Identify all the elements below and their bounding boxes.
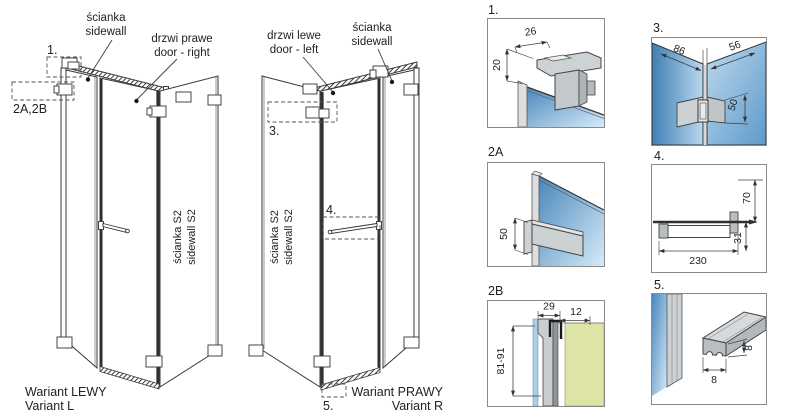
right-view-variant-r: 3. 4. 5. drzwi lewe door - left ścianka … <box>249 22 444 413</box>
right-door-label-line1: drzwi lewe <box>267 30 321 42</box>
svg-text:sidewall S2: sidewall S2 <box>186 209 198 265</box>
dim-81-91: 81-91 <box>495 347 507 374</box>
dim-31: 31 <box>732 232 744 244</box>
right-variant-label-en: Variant R <box>392 399 443 413</box>
detail-1-drawing: 26 20 <box>488 19 604 127</box>
handle-standoff-left <box>659 224 668 238</box>
callout-4-label: 4. <box>326 203 336 217</box>
detail-5-label: 5. <box>654 279 664 292</box>
detail-1-box: 26 20 <box>487 18 605 128</box>
threshold-profile-3d <box>703 312 766 356</box>
detail-2b-drawing: 29 12 81-91 <box>488 301 604 406</box>
left-sidewall-label-line1: ścianka <box>87 12 127 24</box>
callout-3-label: 3. <box>269 124 279 138</box>
detail-2a-label: 2A <box>488 146 503 159</box>
detail-3-drawing: 86 56 50 <box>652 38 766 145</box>
left-variant-label-pl: Wariant LEWY <box>25 385 107 399</box>
dim-26: 26 <box>524 25 537 39</box>
left-door-label-line1: drzwi prawe <box>151 33 212 45</box>
detail-2a-box: 50 <box>487 162 605 267</box>
callout-2ab-label: 2A,2B <box>13 102 47 116</box>
corner-hinge <box>677 97 725 127</box>
left-view-variant-l: 1. 2A,2B ścianka sidewall drzwi prawe do… <box>12 12 222 413</box>
right-variant-label-pl: Wariant PRAWY <box>352 385 444 399</box>
glass-panel <box>652 294 667 396</box>
glass-panel-left <box>652 43 703 145</box>
detail-2b-label: 2B <box>488 285 503 298</box>
detail-4-label: 4. <box>654 150 664 163</box>
right-door-label-line2: door - left <box>270 44 319 56</box>
wall-section <box>565 323 604 406</box>
dim-230: 230 <box>689 255 707 267</box>
dim-8-width: 8 <box>711 374 717 386</box>
callout-1-label: 1. <box>47 43 57 57</box>
svg-text:ścianka S2: ścianka S2 <box>172 210 184 264</box>
detail-5-drawing: 8 8 <box>652 294 766 404</box>
wall-profile <box>61 68 66 341</box>
dim-50: 50 <box>498 228 510 240</box>
dim-8-height: 8 <box>743 345 755 351</box>
glass-edge-profile <box>518 81 527 127</box>
assembly-views-drawing: 1. 2A,2B ścianka sidewall drzwi prawe do… <box>0 0 480 417</box>
dim-20: 20 <box>491 59 503 71</box>
detail-2b-box: 29 12 81-91 <box>487 300 605 407</box>
detail-3-label: 3. <box>653 22 663 35</box>
glass-edge-profile <box>667 294 682 387</box>
svg-text:sidewall S2: sidewall S2 <box>283 209 295 265</box>
profile-insert <box>553 321 558 406</box>
left-variant-label-en: Variant L <box>25 399 74 413</box>
detail-4-drawing: 230 70 31 <box>652 165 766 272</box>
wall-profile <box>414 68 419 341</box>
dim-12: 12 <box>570 306 582 318</box>
handle-bar <box>668 226 730 238</box>
callout-5-label: 5. <box>323 399 333 413</box>
sidewall-panel <box>66 70 97 368</box>
left-sidewall-label-line2: sidewall <box>86 26 127 38</box>
detail-4-box: 230 70 31 <box>651 164 767 273</box>
dim-29: 29 <box>543 301 555 313</box>
dim-70: 70 <box>741 192 753 204</box>
svg-text:ścianka S2: ścianka S2 <box>269 210 281 264</box>
right-sidewall-label-line1: ścianka <box>353 22 393 34</box>
detail-2a-drawing: 50 <box>488 163 604 266</box>
detail-5-box: 8 8 <box>651 293 767 405</box>
detail-3-box: 86 56 50 <box>651 37 767 146</box>
glass-panel-right <box>707 42 766 145</box>
left-door-label-line2: door - right <box>154 47 210 59</box>
glass-section <box>533 319 538 406</box>
sidewall-panel <box>383 70 414 368</box>
detail-1-label: 1. <box>488 4 498 17</box>
right-sidewall-label-line2: sidewall <box>352 36 393 48</box>
technical-drawing-canvas: 1. 2A,2B ścianka sidewall drzwi prawe do… <box>0 0 800 417</box>
